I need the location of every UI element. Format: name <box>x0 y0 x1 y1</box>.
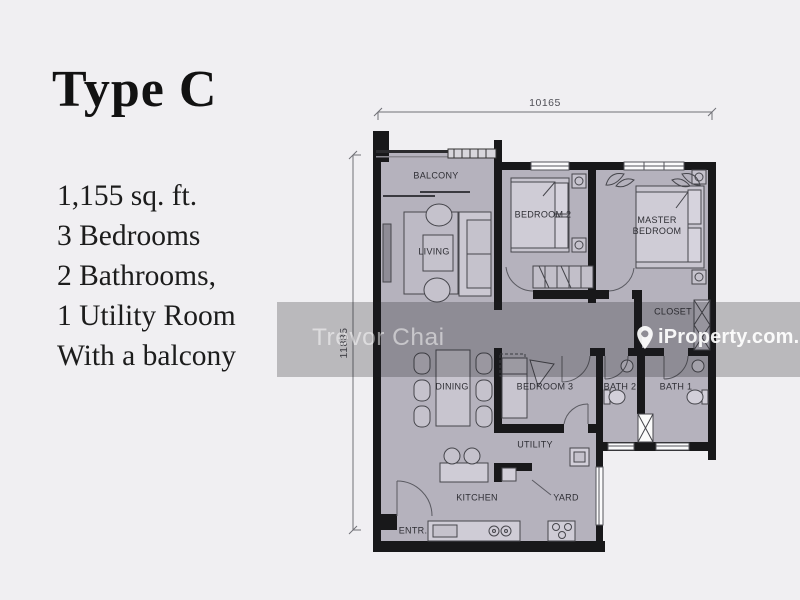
photographer-watermark: Trevor Chai <box>312 324 445 352</box>
room-label-entrance: ENTR. <box>399 527 428 538</box>
room-label-utility: UTILITY <box>517 441 553 452</box>
room-label-bedroom3: BEDROOM 3 <box>517 383 574 394</box>
room-label-master-bedroom: MASTER BEDROOM <box>628 216 687 238</box>
floorplan-drawing <box>0 0 800 600</box>
floorplan-listing-image: Type C 1,155 sq. ft. 3 Bedrooms 2 Bathro… <box>0 0 800 600</box>
room-label-dining: DINING <box>435 383 468 394</box>
brand-watermark-text: iProperty.com.my <box>658 326 800 349</box>
location-pin-icon <box>637 326 653 349</box>
room-label-bath1: BATH 1 <box>660 383 693 394</box>
room-label-yard: YARD <box>553 494 579 505</box>
room-label-bedroom2: BEDROOM 2 <box>515 211 572 222</box>
room-label-living: LIVING <box>418 248 449 259</box>
brand-watermark: iProperty.com.my <box>637 326 800 349</box>
room-label-balcony: BALCONY <box>413 172 458 183</box>
dimension-width-label: 10165 <box>529 97 561 109</box>
room-label-kitchen: KITCHEN <box>456 494 498 505</box>
room-label-bath2: BATH 2 <box>604 383 637 394</box>
